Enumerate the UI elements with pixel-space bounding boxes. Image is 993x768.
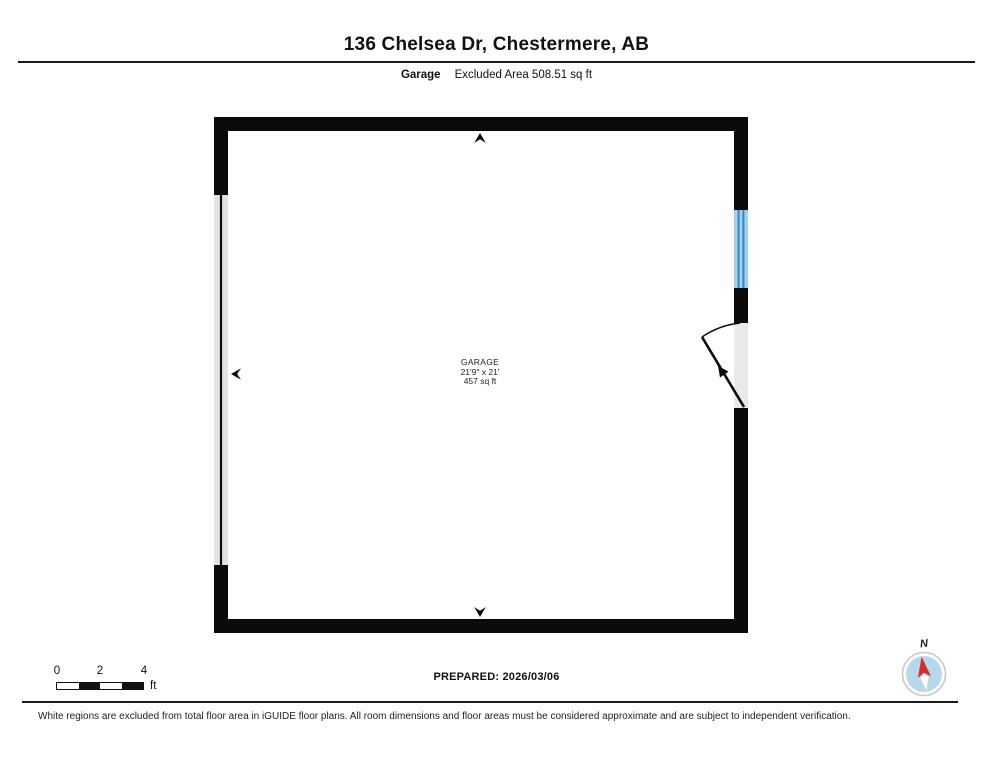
- page-title: 136 Chelsea Dr, Chestermere, AB: [0, 34, 993, 56]
- room-area: 457 sq ft: [366, 377, 594, 387]
- floorplan-page: 136 Chelsea Dr, Chestermere, AB GarageEx…: [0, 0, 993, 768]
- room-label: GARAGE 21'9" x 21' 457 sq ft: [366, 358, 594, 387]
- scale-bar-segments: [56, 682, 144, 690]
- disclaimer-text: White regions are excluded from total fl…: [38, 711, 968, 722]
- window: [734, 210, 748, 288]
- arrow-down-icon: [474, 607, 486, 617]
- wall-top: [214, 117, 748, 131]
- arrow-up-icon: [474, 133, 486, 143]
- scale-segment: [122, 683, 144, 689]
- compass-rose-icon: [901, 651, 947, 697]
- compass: N: [896, 638, 952, 700]
- scale-segment: [79, 683, 101, 689]
- footer-divider: [22, 701, 958, 703]
- header-divider: [18, 61, 975, 63]
- wall-bottom: [214, 619, 748, 633]
- floor-name-label: Garage: [401, 69, 441, 81]
- scale-segment: [100, 683, 122, 689]
- excluded-area-label: Excluded Area 508.51 sq ft: [455, 69, 592, 81]
- floor-subtitle: GarageExcluded Area 508.51 sq ft: [0, 69, 993, 81]
- scale-segment: [57, 683, 79, 689]
- compass-north-label: N: [919, 638, 928, 651]
- prepared-date: PREPARED: 2026/03/06: [0, 671, 993, 683]
- door-direction-arrow-icon: [718, 366, 729, 378]
- arrow-left-icon: [231, 368, 241, 380]
